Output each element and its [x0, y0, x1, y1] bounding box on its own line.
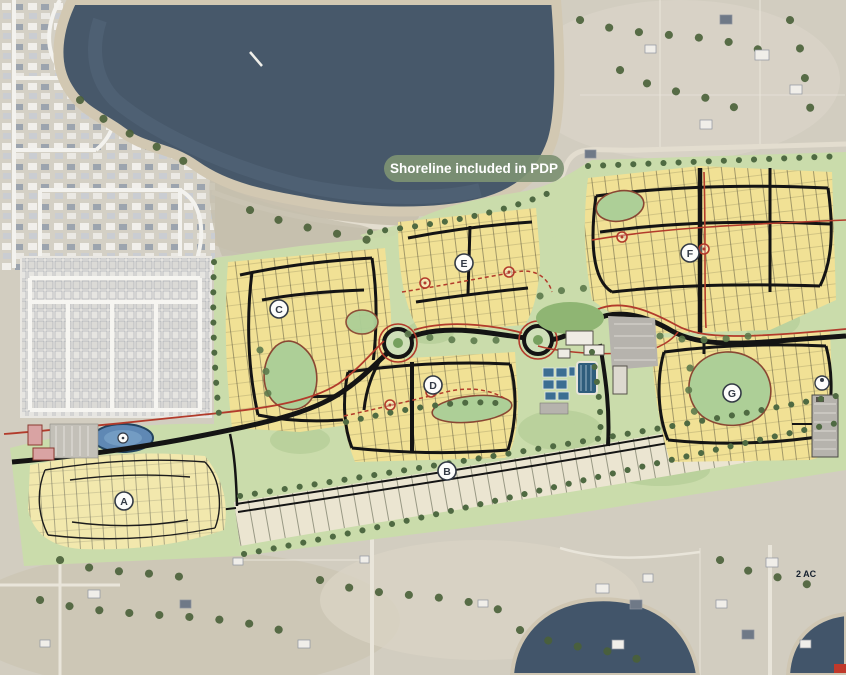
marker-a: A — [115, 492, 133, 510]
roundabout-west — [379, 324, 417, 362]
marker-e: E — [455, 254, 473, 272]
marker-b: B — [438, 462, 456, 480]
marker-c-label: C — [275, 304, 283, 316]
marker-f-label: F — [687, 248, 694, 260]
marker-g-label: G — [728, 388, 736, 400]
marker-a-label: A — [120, 496, 128, 508]
existing-subdivision-rows — [20, 256, 212, 418]
marker-d: D — [424, 376, 442, 394]
marker-f: F — [681, 244, 699, 262]
corner-red-mark — [834, 664, 846, 673]
pond-small — [346, 310, 378, 334]
shoreline-callout: Shoreline included in PDP — [384, 155, 564, 182]
acreage-label: 2 AC — [796, 569, 817, 579]
pond-marker — [118, 433, 128, 443]
event-lawn — [536, 302, 604, 334]
marker-b-label: B — [443, 466, 451, 478]
marker-g: G — [723, 384, 741, 402]
amenity-marker — [815, 376, 829, 390]
west-commercial-site — [28, 424, 98, 460]
amenity-parking-south — [540, 403, 568, 414]
site-plan-screenshot: A B C D E F G — [0, 0, 846, 675]
site-plan-map: A B C D E F G — [0, 0, 846, 675]
marker-c: C — [270, 300, 288, 318]
shoreline-label: Shoreline included in PDP — [390, 161, 558, 176]
marker-e-label: E — [460, 258, 467, 270]
marker-d-label: D — [429, 380, 437, 392]
